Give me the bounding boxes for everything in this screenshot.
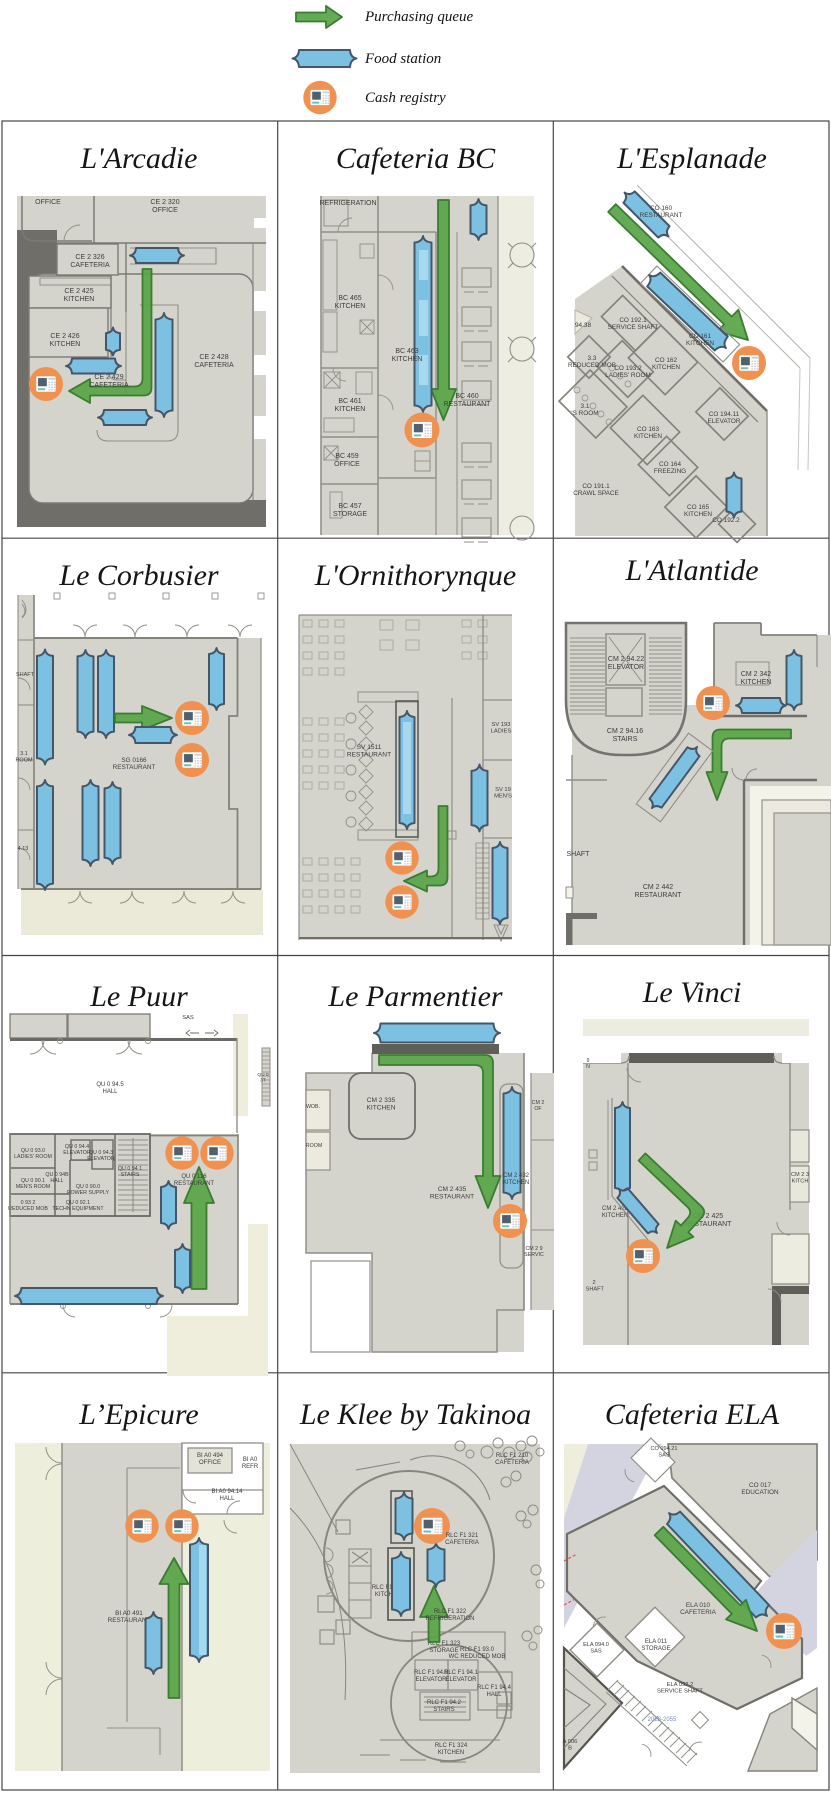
svg-text:4.13: 4.13 [18, 846, 29, 852]
svg-text:2028-2055: 2028-2055 [648, 1717, 677, 1723]
svg-text:Le Corbusier: Le Corbusier [58, 559, 219, 592]
svg-text:ROOM: ROOM [306, 1143, 322, 1149]
svg-text:CO 163KITCHEN: CO 163KITCHEN [634, 426, 662, 440]
svg-text:CE 2 425KITCHEN: CE 2 425KITCHEN [64, 288, 95, 303]
svg-text:CO 194.11ELEVATOR: CO 194.11ELEVATOR [707, 411, 740, 425]
svg-text:CM 2 94.22ELEVATOR: CM 2 94.22ELEVATOR [608, 656, 644, 671]
svg-text:BC 463KITCHEN: BC 463KITCHEN [392, 348, 423, 363]
svg-text:BC 459OFFICE: BC 459OFFICE [334, 453, 360, 468]
svg-text:CO 165KITCHEN: CO 165KITCHEN [684, 504, 712, 518]
svg-text:CE 2 326CAFETERIA: CE 2 326CAFETERIA [70, 254, 110, 269]
svg-text:CO 162KITCHEN: CO 162KITCHEN [652, 357, 680, 371]
svg-text:RLC F1 210CAFETERIA: RLC F1 210CAFETERIA [495, 1453, 529, 1466]
svg-text:BI A0REFR: BI A0REFR [242, 1457, 259, 1470]
svg-text:L'Ornithorynque: L'Ornithorynque [314, 559, 516, 592]
svg-text:CM 2 335KITCHEN: CM 2 335KITCHEN [367, 1097, 396, 1111]
svg-text:SV 19MEN'S: SV 19MEN'S [494, 787, 512, 800]
svg-text:94.38: 94.38 [575, 322, 591, 329]
svg-text:Cafeteria ELA: Cafeteria ELA [605, 1398, 780, 1431]
svg-text:QU 0 94.3ELEVATOR: QU 0 94.3ELEVATOR [87, 1150, 115, 1162]
svg-text:BC 461KITCHEN: BC 461KITCHEN [335, 398, 366, 413]
svg-text:QU 0 94 1STAIRS: QU 0 94 1STAIRS [118, 1166, 142, 1178]
svg-text:SHAFT: SHAFT [16, 672, 35, 678]
svg-text:L'Arcadie: L'Arcadie [80, 142, 198, 175]
svg-text:Food station: Food station [364, 51, 441, 67]
svg-text:CE 2 429CAFETERIA: CE 2 429CAFETERIA [89, 374, 129, 389]
svg-text:REFRIGERATION: REFRIGERATION [319, 200, 376, 207]
svg-text:CO 192.2: CO 192.2 [712, 517, 740, 524]
svg-text:OFFICE: OFFICE [35, 199, 61, 206]
svg-text:SHAFT: SHAFT [567, 851, 591, 858]
svg-text:CE 2 426KITCHEN: CE 2 426KITCHEN [50, 333, 81, 348]
svg-text:Cafeteria BC: Cafeteria BC [336, 142, 496, 175]
svg-text:CM 2 3KITCH: CM 2 3KITCH [791, 1172, 809, 1184]
svg-text:QU 0 90.1MEN'S ROOM: QU 0 90.1MEN'S ROOM [16, 1178, 50, 1190]
svg-text:CM 2 432KITCHEN: CM 2 432KITCHEN [503, 1173, 530, 1186]
svg-text:RLC F1 321CAFETERIA: RLC F1 321CAFETERIA [445, 1533, 479, 1546]
svg-text:CE 2 428CAFETERIA: CE 2 428CAFETERIA [194, 354, 234, 369]
svg-text:BI A0 494OFFICE: BI A0 494OFFICE [197, 1453, 224, 1466]
svg-text:CM 2 428KITCHEN: CM 2 428KITCHEN [602, 1206, 629, 1219]
svg-text:RLC F1 324KITCHEN: RLC F1 324KITCHEN [435, 1743, 468, 1756]
svg-text:L'Esplanade: L'Esplanade [616, 142, 767, 175]
svg-text:L'Atlantide: L'Atlantide [624, 554, 758, 587]
svg-text:CM 2 9SERVIC: CM 2 9SERVIC [524, 1246, 544, 1258]
svg-text:L’Epicure: L’Epicure [78, 1398, 198, 1431]
svg-text:RLC F1 323STORAGE: RLC F1 323STORAGE [428, 1641, 461, 1654]
svg-text:CO 161KITCHEN: CO 161KITCHEN [686, 333, 714, 347]
svg-text:Purchasing queue: Purchasing queue [364, 9, 474, 25]
svg-text:WOB.: WOB. [306, 1104, 320, 1110]
svg-text:Le Vinci: Le Vinci [642, 976, 742, 1009]
svg-text:QU 0 94.4ELEVATOR: QU 0 94.4ELEVATOR [63, 1144, 91, 1156]
svg-text:Le Klee by Takinoa: Le Klee by Takinoa [299, 1398, 531, 1431]
svg-text:CE 2 320OFFICE: CE 2 320OFFICE [150, 199, 179, 214]
svg-text:SV 193LADIES: SV 193LADIES [491, 722, 512, 735]
svg-text:SAS: SAS [182, 1015, 194, 1021]
svg-text:Le Puur: Le Puur [89, 980, 188, 1013]
svg-text:CM 2 342KITCHEN: CM 2 342KITCHEN [741, 671, 772, 686]
svg-text:ELA 011STORAGE: ELA 011STORAGE [641, 1639, 670, 1652]
svg-text:BC 465KITCHEN: BC 465KITCHEN [335, 295, 366, 310]
svg-text:QU 0 94.5HALL: QU 0 94.5HALL [96, 1082, 124, 1095]
svg-text:Cash registry: Cash registry [365, 90, 446, 106]
svg-text:RLC F1 94.1ELEVATOR: RLC F1 94.1ELEVATOR [444, 1670, 479, 1683]
svg-text:Le Parmentier: Le Parmentier [327, 980, 502, 1013]
